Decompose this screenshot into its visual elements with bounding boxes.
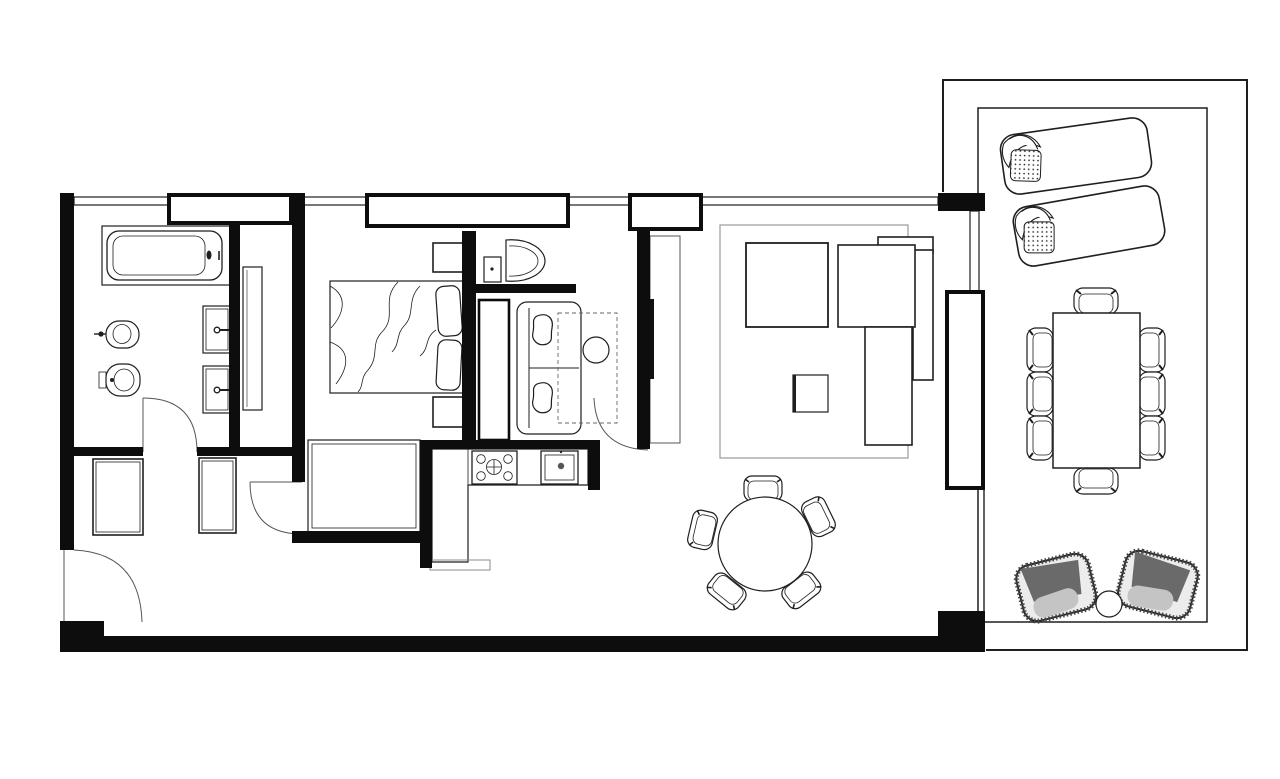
loveseat-sofa [517, 302, 581, 434]
wall-bedroom-bottom [292, 531, 432, 543]
vanity-sink-1 [203, 306, 231, 353]
wall-wc-bottom [476, 284, 576, 293]
entrance-door [64, 549, 142, 622]
pillow [435, 285, 462, 337]
wall-bedroom-left [292, 193, 305, 482]
square-lounge-seat [746, 243, 828, 327]
terrace-chair [1139, 328, 1165, 372]
terrace-dining-set [1027, 288, 1165, 494]
wall-top-right-corner [938, 193, 985, 211]
sun-lounger-2 [1011, 184, 1167, 269]
tv-nook [479, 300, 617, 440]
dining-area [686, 476, 838, 613]
pier-top-3 [630, 195, 701, 229]
washbasin [506, 240, 545, 281]
floor-plan-canvas [0, 0, 1280, 779]
wall-bottom-left-block [60, 621, 104, 652]
bidet [94, 321, 139, 348]
terrace-chair [1074, 288, 1118, 314]
entry-hall [93, 458, 236, 535]
vanity-sink-2 [203, 366, 231, 413]
wall-bathroom-bottom-left [60, 447, 143, 456]
closet-left [93, 459, 143, 535]
wall-left-exterior [60, 193, 74, 550]
terrace-chair [1027, 328, 1053, 372]
pier-top-1 [169, 195, 291, 223]
throw-pillow [533, 383, 553, 413]
round-side-table [583, 337, 609, 363]
wall-kitchen-stub [588, 440, 600, 490]
window-right [970, 211, 979, 291]
bedroom-door [250, 482, 302, 534]
wardrobe [308, 440, 420, 532]
terrace-dining-table [1053, 313, 1140, 468]
pier-right [947, 292, 983, 488]
service-shaft [243, 267, 262, 410]
wall-tv-partition [637, 231, 650, 449]
bathroom-door [143, 398, 197, 452]
wall-kitchen-left [420, 440, 432, 568]
pillow [436, 339, 463, 390]
living-room [648, 225, 933, 458]
terrace-chair [1027, 372, 1053, 416]
nightstand-bottom [433, 397, 463, 427]
terrace-chair [1074, 468, 1118, 494]
terrace-chair [1139, 372, 1165, 416]
terrace-chair [1027, 416, 1053, 460]
bathtub [102, 226, 231, 285]
outdoor-armchair-1 [1013, 551, 1099, 624]
throw-pillow [533, 315, 553, 345]
sun-lounger-1 [999, 116, 1154, 196]
wall-bedroom-right [462, 231, 476, 449]
dining-chair [686, 509, 719, 552]
wall-bottom-exterior [88, 636, 940, 652]
closet-right [199, 458, 236, 533]
wall-bottom-right-block [938, 611, 985, 652]
kitchen [430, 449, 588, 570]
wall-bathroom-bottom-right [197, 447, 304, 456]
nightstand-top [433, 243, 463, 272]
round-dining-table [718, 497, 812, 591]
outdoor-armchair-2 [1115, 548, 1201, 621]
wall-bathroom-right [229, 222, 240, 456]
l-shaped-counter [432, 449, 588, 562]
coffee-table [793, 375, 828, 412]
boiler-box [484, 257, 501, 282]
pier-top-2 [367, 195, 568, 226]
tall-cabinet [479, 300, 509, 440]
wc [484, 240, 545, 282]
tv-cabinet [650, 236, 680, 443]
toilet [99, 364, 140, 396]
terrace-side-table [1096, 591, 1122, 617]
wall-kitchen-top [420, 440, 600, 449]
terrace-chair [1139, 416, 1165, 460]
terrace [943, 80, 1247, 650]
sectional-sofa [838, 237, 933, 445]
